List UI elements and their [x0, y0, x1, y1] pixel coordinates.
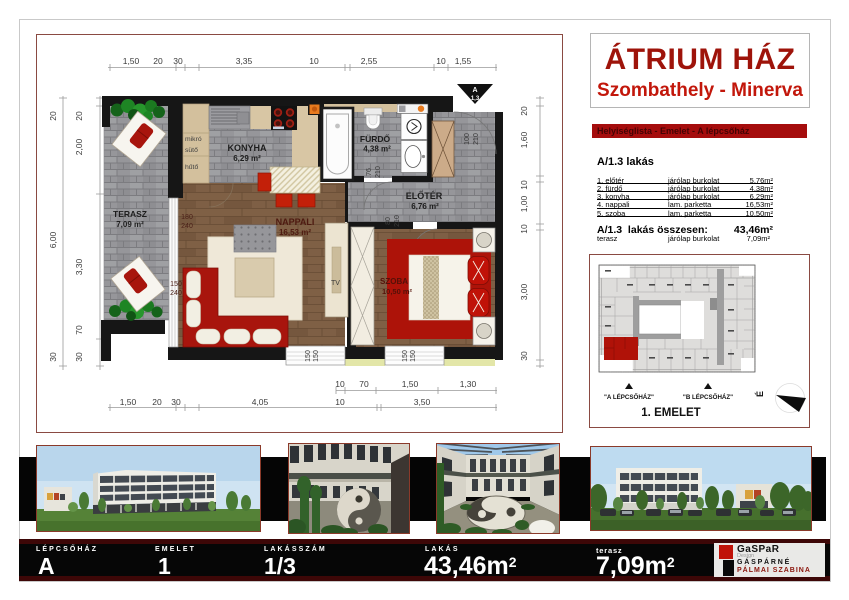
svg-text:10: 10: [309, 56, 319, 66]
svg-text:"B LÉPCSŐHÁZ": "B LÉPCSŐHÁZ": [683, 393, 733, 401]
svg-text:"A LÉPCSŐHÁZ": "A LÉPCSŐHÁZ": [604, 393, 654, 401]
svg-text:1,30: 1,30: [460, 379, 477, 389]
svg-text:240: 240: [170, 290, 182, 297]
svg-text:2,00: 2,00: [74, 138, 84, 155]
svg-text:180: 180: [181, 214, 193, 221]
svg-text:1. EMELET: 1. EMELET: [641, 407, 700, 419]
svg-text:1,55: 1,55: [455, 56, 472, 66]
svg-text:É: É: [755, 391, 765, 397]
svg-text:6,76 m²: 6,76 m²: [411, 202, 439, 211]
svg-text:4,38 m²: 4,38 m²: [363, 145, 391, 154]
svg-text:hűtő: hűtő: [185, 164, 198, 171]
svg-text:3,00: 3,00: [519, 283, 529, 300]
svg-text:20: 20: [74, 111, 84, 121]
svg-text:7,09 m²: 7,09 m²: [116, 220, 144, 229]
svg-text:30: 30: [48, 352, 58, 362]
svg-text:210: 210: [473, 133, 480, 145]
svg-text:1,50: 1,50: [120, 397, 137, 407]
svg-text:1,50: 1,50: [402, 379, 419, 389]
svg-text:10,50 m²: 10,50 m²: [382, 287, 413, 296]
svg-text:150: 150: [402, 350, 409, 362]
svg-text:TV: TV: [331, 280, 340, 287]
svg-text:TERASZ: TERASZ: [113, 209, 147, 219]
svg-text:20: 20: [152, 397, 162, 407]
svg-text:30: 30: [74, 352, 84, 362]
svg-text:10: 10: [519, 180, 529, 190]
svg-text:30: 30: [171, 397, 181, 407]
svg-text:150: 150: [170, 281, 182, 288]
svg-text:SZOBA: SZOBA: [380, 277, 408, 286]
svg-text:20: 20: [48, 111, 58, 121]
svg-text:NAPPALI: NAPPALI: [276, 217, 315, 227]
svg-text:KONYHA: KONYHA: [227, 143, 267, 153]
svg-text:6,00: 6,00: [48, 231, 58, 248]
svg-text:30: 30: [519, 351, 529, 361]
svg-text:20: 20: [519, 106, 529, 116]
svg-text:76: 76: [366, 168, 373, 176]
svg-text:1,60: 1,60: [519, 131, 529, 148]
svg-text:10: 10: [335, 379, 345, 389]
svg-text:A: A: [472, 87, 477, 94]
svg-text:6,29 m²: 6,29 m²: [233, 154, 261, 163]
svg-text:70: 70: [74, 325, 84, 335]
svg-text:3,50: 3,50: [414, 397, 431, 407]
svg-text:70: 70: [359, 379, 369, 389]
svg-text:80: 80: [385, 217, 392, 225]
svg-text:150: 150: [410, 350, 417, 362]
svg-text:150: 150: [313, 350, 320, 362]
svg-text:10: 10: [436, 56, 446, 66]
svg-text:3,30: 3,30: [74, 258, 84, 275]
svg-text:ELŐTÉR: ELŐTÉR: [406, 190, 443, 201]
svg-text:1,50: 1,50: [123, 56, 140, 66]
svg-text:30: 30: [173, 56, 183, 66]
svg-text:4,05: 4,05: [252, 397, 269, 407]
svg-text:150: 150: [305, 350, 312, 362]
svg-text:sütő: sütő: [185, 147, 198, 154]
svg-text:1,3: 1,3: [471, 96, 480, 102]
svg-text:16,53 m²: 16,53 m²: [279, 228, 311, 237]
svg-text:10: 10: [335, 397, 345, 407]
svg-text:240: 240: [181, 223, 193, 230]
svg-text:210: 210: [375, 166, 382, 178]
svg-text:2,55: 2,55: [361, 56, 378, 66]
svg-text:3,35: 3,35: [236, 56, 253, 66]
svg-text:mikró: mikró: [185, 136, 202, 143]
svg-text:210: 210: [394, 215, 401, 227]
svg-text:20: 20: [153, 56, 163, 66]
svg-text:1,00: 1,00: [519, 195, 529, 212]
svg-text:100: 100: [464, 133, 471, 145]
svg-text:10: 10: [519, 224, 529, 234]
svg-text:FÜRDŐ: FÜRDŐ: [360, 133, 391, 144]
